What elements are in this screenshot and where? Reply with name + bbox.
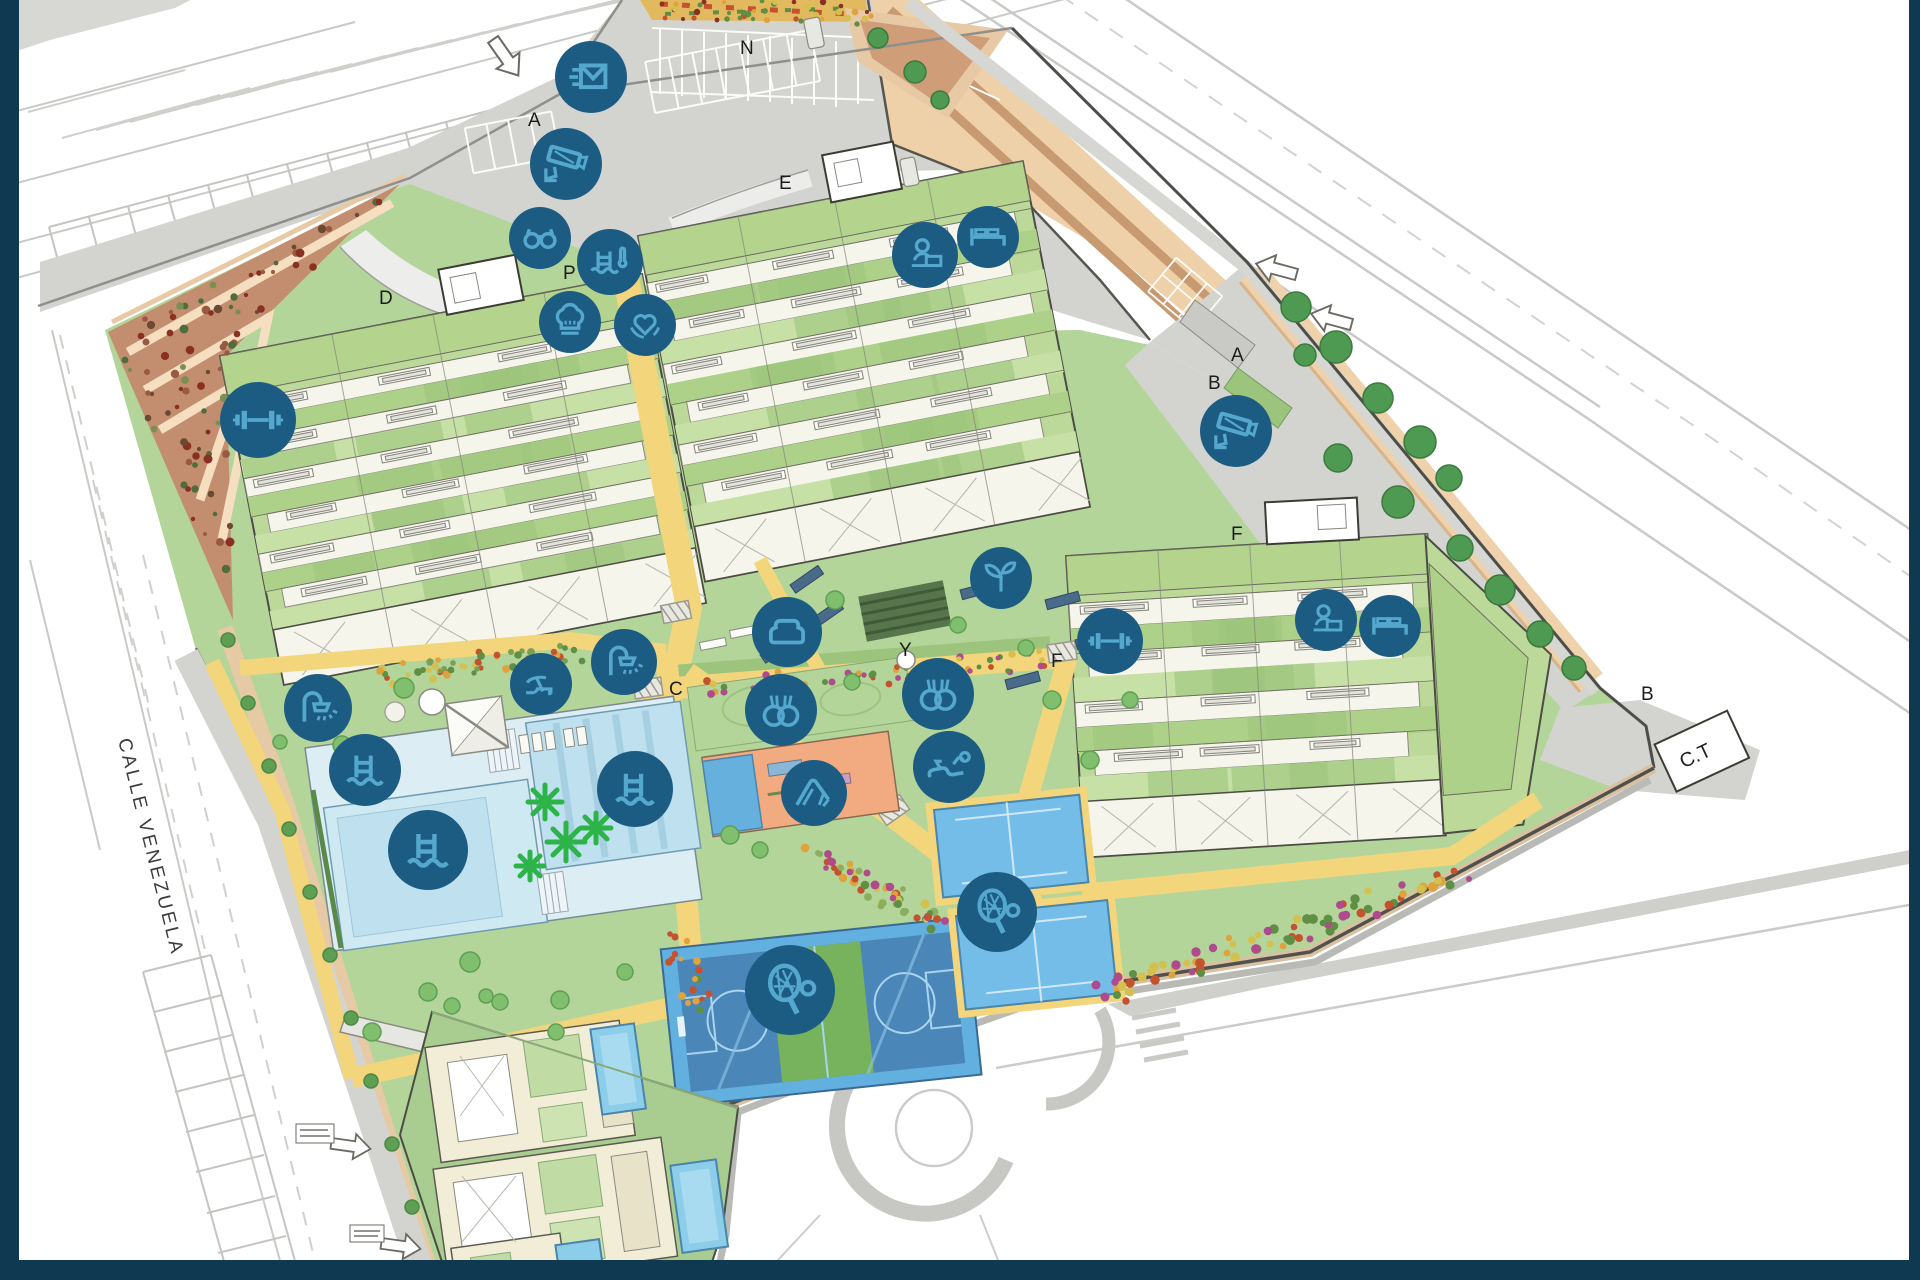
svg-text:B: B <box>1208 373 1221 394</box>
svg-text:A: A <box>528 110 541 131</box>
svg-text:B: B <box>1641 684 1654 705</box>
svg-text:C: C <box>669 679 683 700</box>
svg-text:F: F <box>1051 651 1063 672</box>
svg-text:P: P <box>563 263 576 284</box>
svg-text:Y: Y <box>899 640 912 661</box>
svg-text:A: A <box>1231 345 1244 366</box>
svg-text:E: E <box>779 173 792 194</box>
svg-text:F: F <box>1231 524 1243 545</box>
svg-text:N: N <box>740 38 754 59</box>
svg-text:D: D <box>379 288 393 309</box>
